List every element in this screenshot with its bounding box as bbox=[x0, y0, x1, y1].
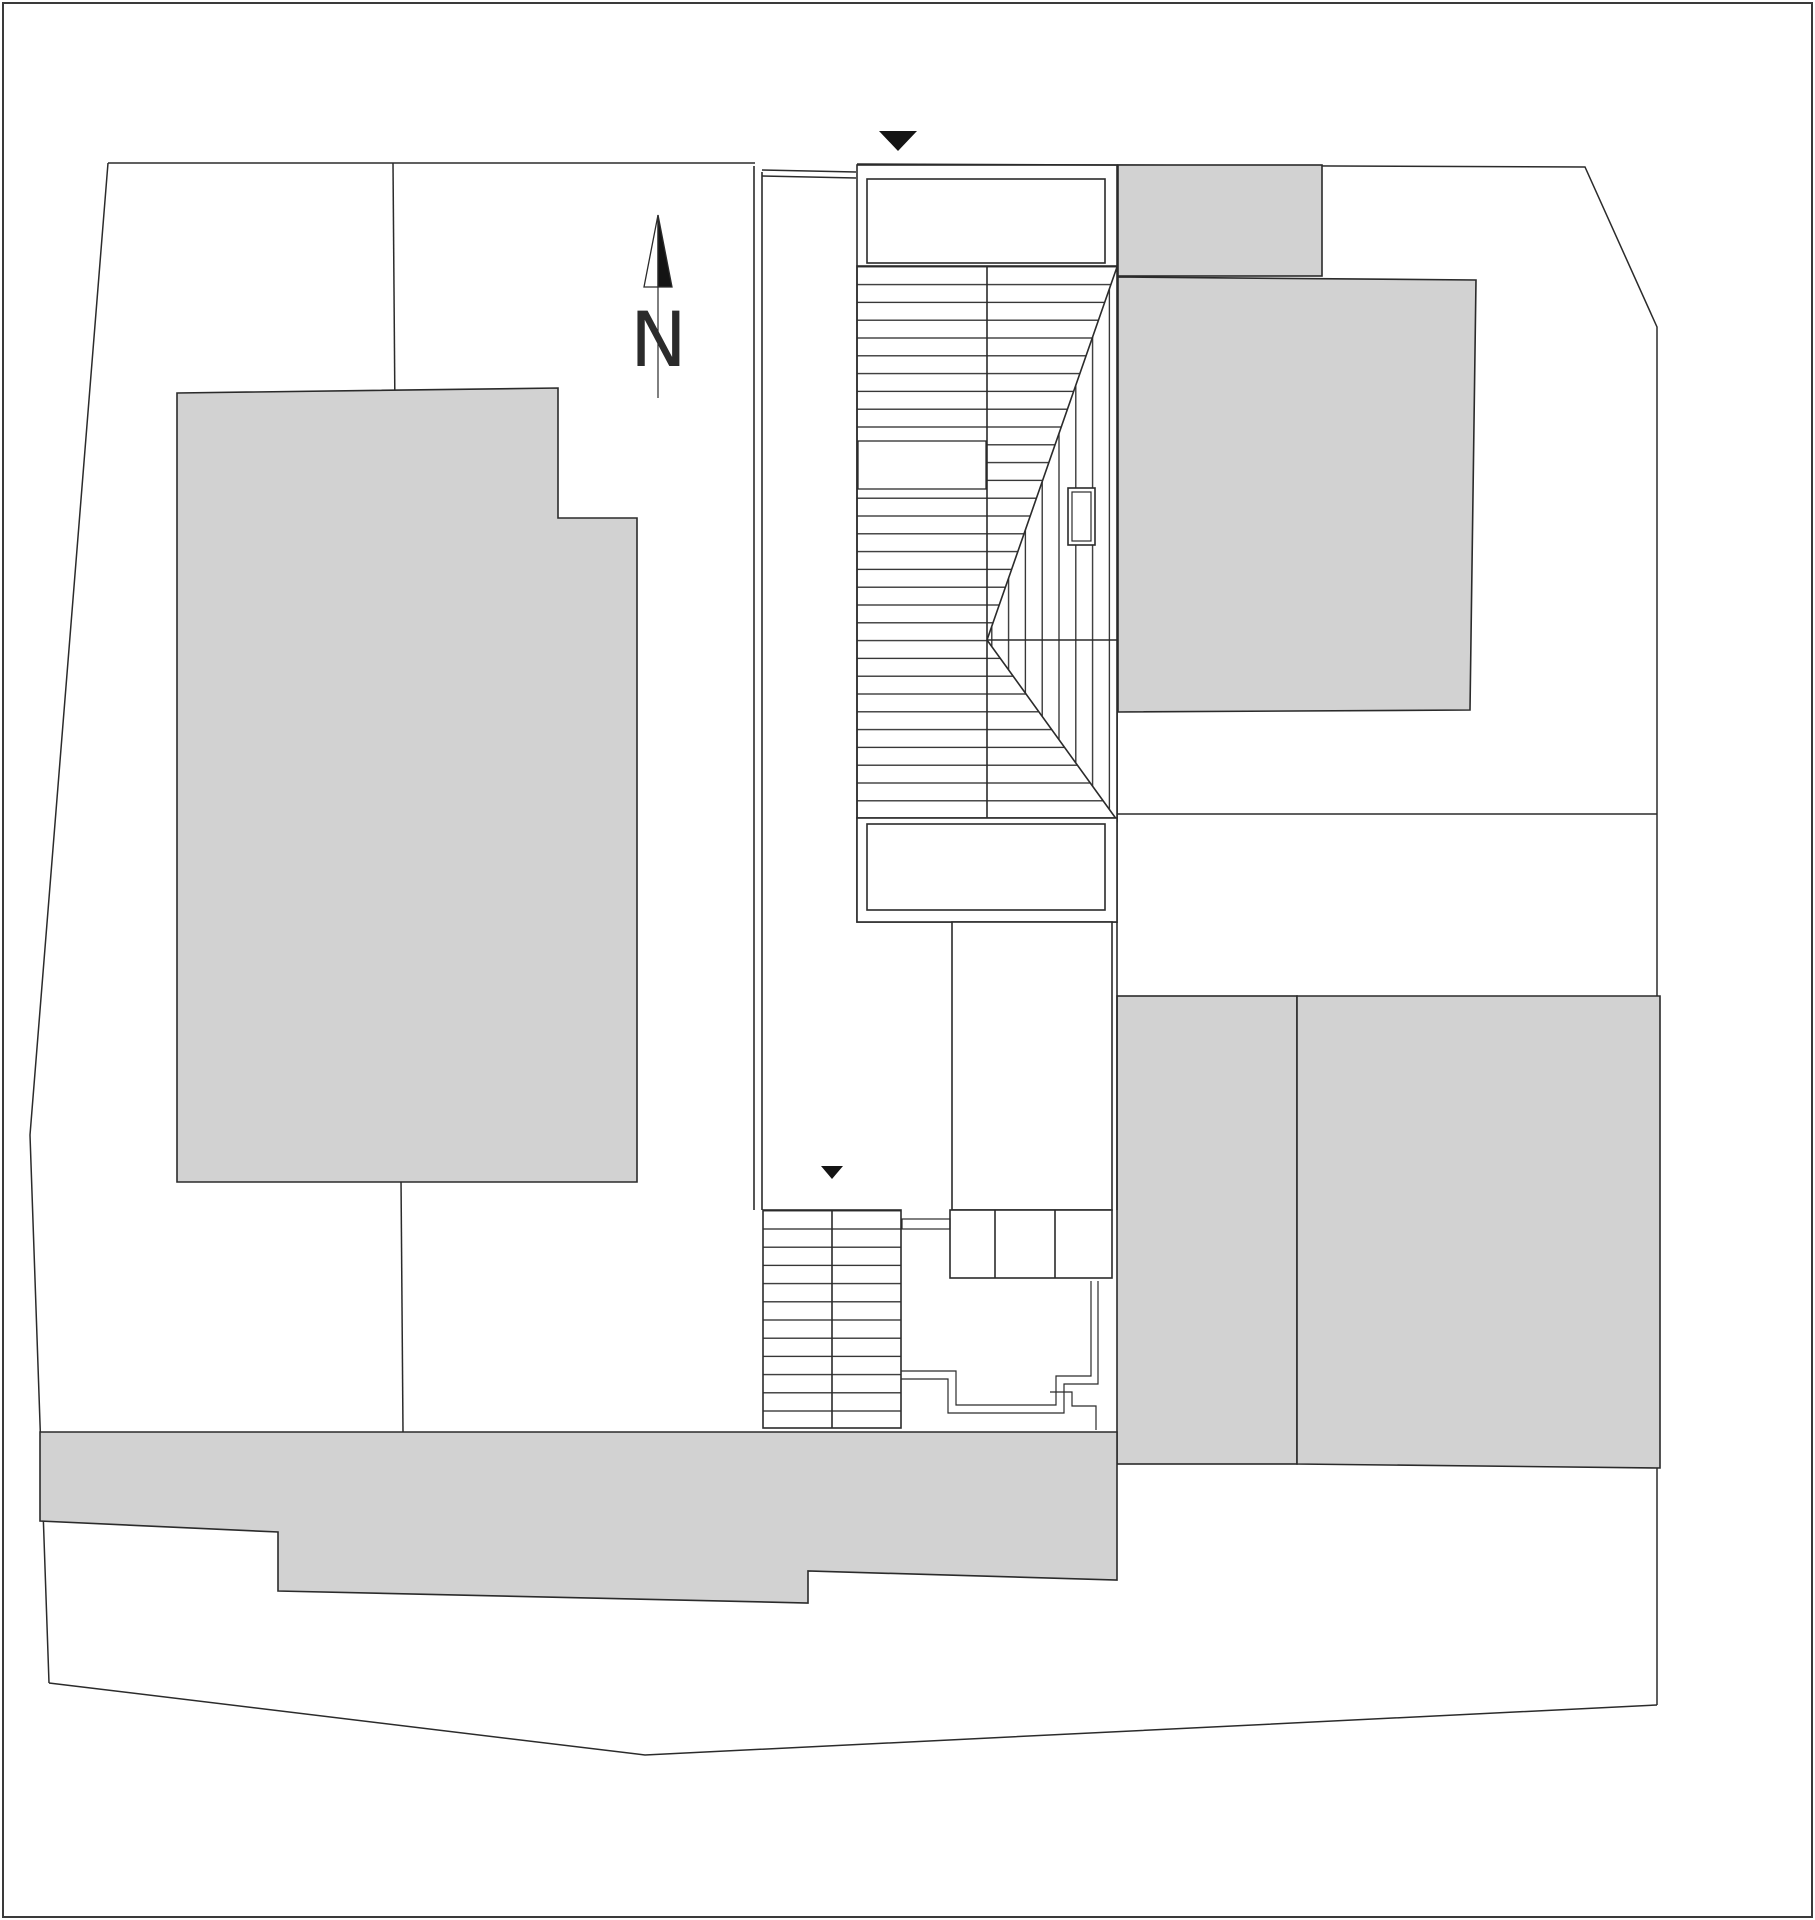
triangle-down-icon bbox=[821, 1166, 843, 1179]
terrace-steps bbox=[1050, 1392, 1096, 1430]
site-plan-sheet: N bbox=[0, 0, 1815, 1920]
utility-cells bbox=[902, 1210, 1112, 1278]
roof-skylight-band bbox=[858, 441, 986, 489]
building-west-neighbor bbox=[177, 388, 637, 1182]
boundary-bottom-segment bbox=[49, 1683, 1657, 1755]
building-east-large bbox=[1118, 277, 1476, 712]
main-building-roof-plan bbox=[857, 165, 1117, 922]
north-arrow-icon: N bbox=[630, 215, 687, 398]
roof-bottom-parapet bbox=[857, 818, 1117, 922]
lower-extension bbox=[952, 922, 1117, 1210]
site-plan-drawing: N bbox=[0, 0, 1815, 1920]
roof-top-parapet bbox=[867, 179, 1105, 263]
road-strip-south bbox=[40, 1432, 1117, 1603]
driveway-edge-lines bbox=[754, 166, 856, 1210]
triangle-down-icon bbox=[879, 131, 917, 151]
building-southeast-a bbox=[1117, 996, 1297, 1464]
building-northeast-small bbox=[1118, 165, 1322, 276]
roof-chimney bbox=[1068, 488, 1095, 545]
north-label: N bbox=[630, 295, 687, 384]
building-southeast-b bbox=[1297, 996, 1660, 1468]
terrace-outline bbox=[901, 1281, 1098, 1430]
stairs-south bbox=[763, 1210, 901, 1428]
landing bbox=[902, 1219, 950, 1229]
